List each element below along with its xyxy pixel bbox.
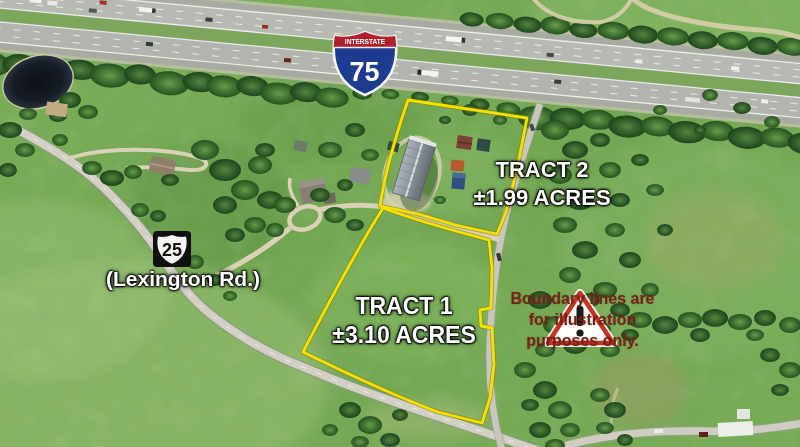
tract1-acreage: ±3.10 ACRES: [294, 321, 514, 350]
aerial-photo-layer: [0, 0, 800, 447]
tract2-name: TRACT 2: [432, 156, 652, 184]
interstate-banner-text: INTERSTATE: [345, 38, 386, 45]
disclaimer-line-2: for illustration: [500, 309, 665, 330]
road-name-label: (Lexington Rd.): [83, 266, 283, 293]
tract1-label: TRACT 1 ±3.10 ACRES: [294, 292, 514, 351]
aerial-property-map: INTERSTATE 75 25 (Lexington Rd.) TRACT 2…: [0, 0, 800, 447]
interstate-75-shield: INTERSTATE 75: [331, 26, 399, 102]
us-route-number: 25: [162, 240, 182, 260]
tract2-label: TRACT 2 ±1.99 ACRES: [432, 156, 652, 212]
tract2-acreage: ±1.99 ACRES: [432, 184, 652, 212]
disclaimer-line-1: Boundary lines are: [500, 288, 665, 309]
boundary-disclaimer: Boundary lines are for illustration purp…: [500, 288, 665, 351]
tract1-name: TRACT 1: [294, 292, 514, 321]
us-route-25-shield: 25: [152, 229, 192, 269]
interstate-number: 75: [349, 57, 379, 87]
disclaimer-line-3: purposes only.: [500, 330, 665, 351]
